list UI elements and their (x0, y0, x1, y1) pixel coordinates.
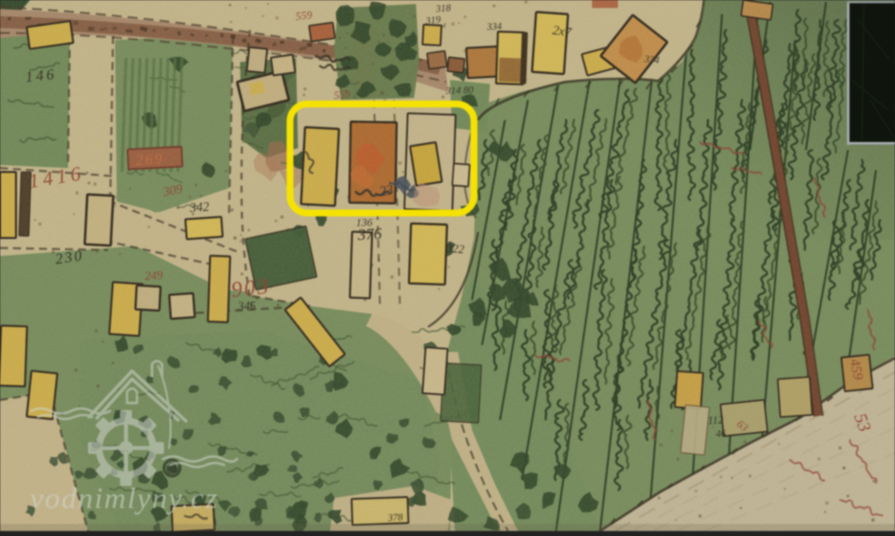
svg-text:vodnimlyny.cz: vodnimlyny.cz (30, 482, 219, 515)
